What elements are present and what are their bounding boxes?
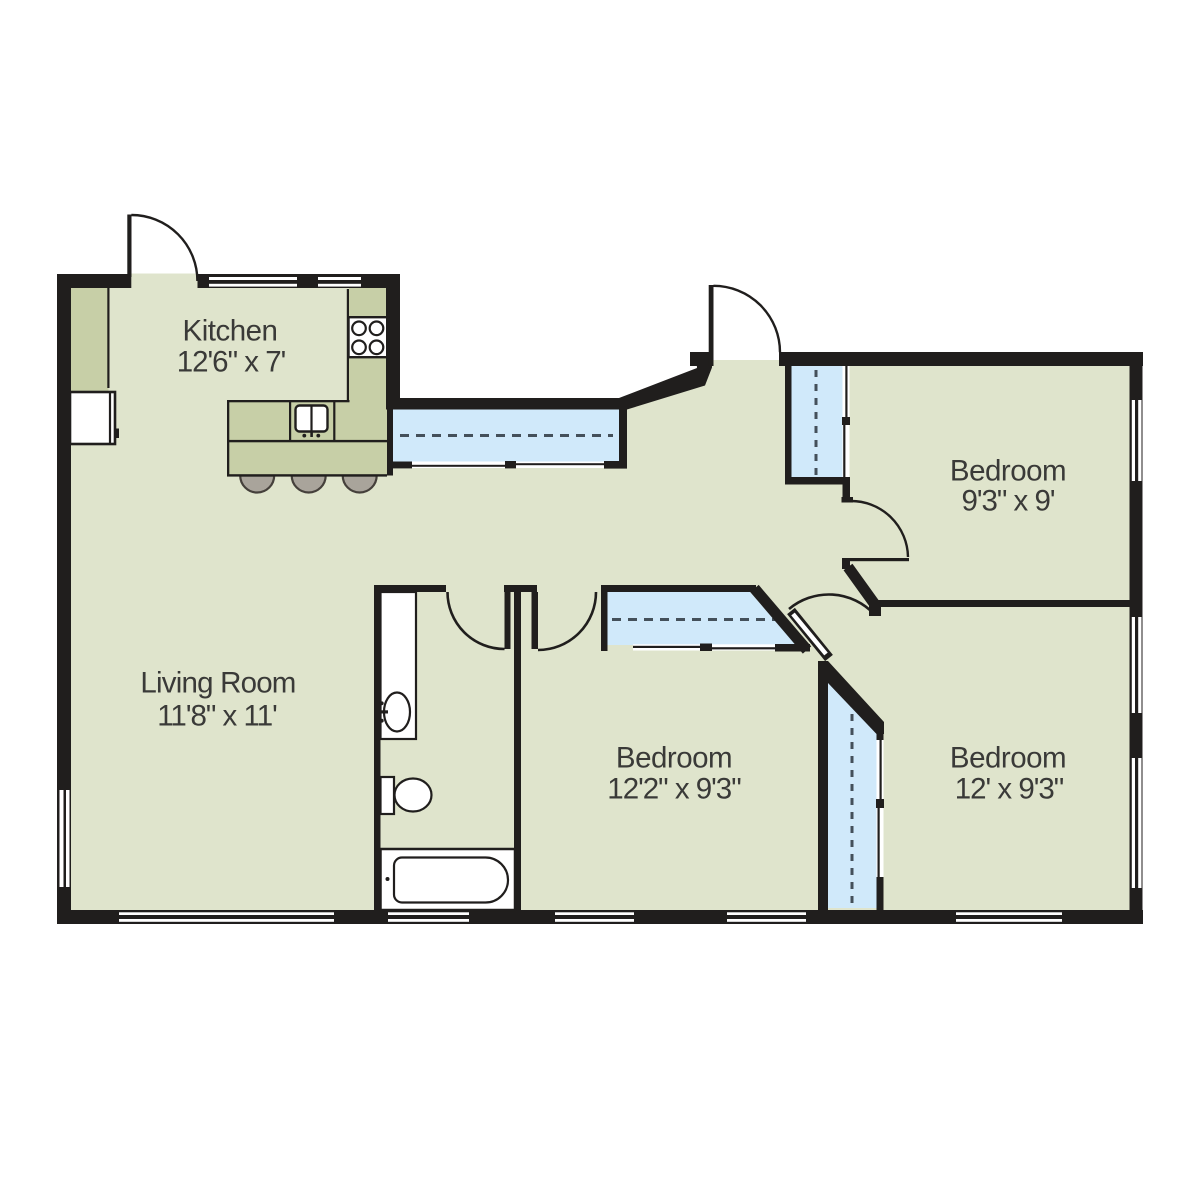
svg-text:Bedroom: Bedroom [950, 455, 1066, 488]
svg-text:9'3" x 9': 9'3" x 9' [961, 485, 1054, 518]
svg-text:Bedroom: Bedroom [950, 742, 1066, 775]
svg-text:12'2" x 9'3": 12'2" x 9'3" [607, 773, 741, 806]
svg-text:11'8" x 11': 11'8" x 11' [157, 700, 277, 733]
svg-text:12' x 9'3": 12' x 9'3" [955, 773, 1064, 806]
svg-text:Living Room: Living Room [140, 667, 295, 700]
svg-text:Bedroom: Bedroom [616, 742, 732, 775]
svg-text:Kitchen: Kitchen [183, 315, 278, 348]
svg-text:12'6" x 7': 12'6" x 7' [177, 346, 286, 379]
